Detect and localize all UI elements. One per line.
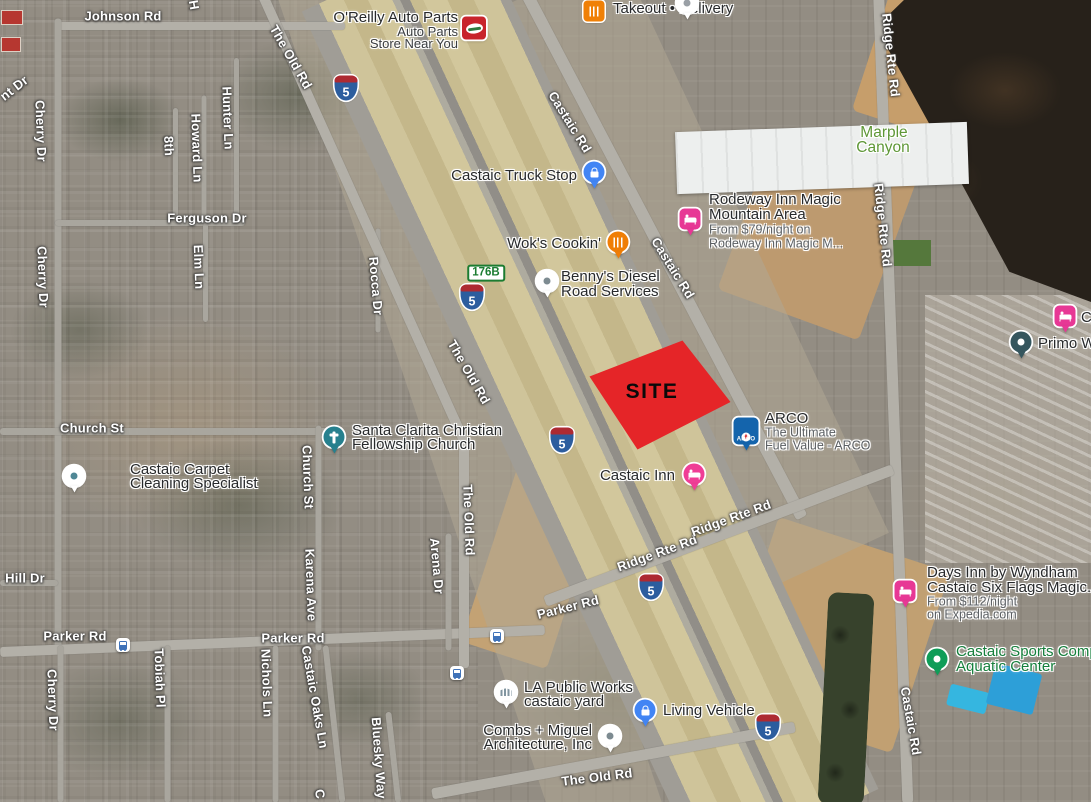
- road-label-nichols-ln: Nichols Ln: [258, 649, 275, 718]
- road: [173, 108, 178, 223]
- primo-icon[interactable]: [1011, 332, 1032, 353]
- warehouse-building: [675, 122, 969, 194]
- dining-icon: [590, 6, 599, 16]
- road-label-tobiah-pl: Tobiah Pl: [151, 648, 168, 708]
- arco-label[interactable]: Fuel Value - ARCO: [765, 439, 870, 452]
- road: [0, 428, 330, 435]
- exit-176b-sign: 176B: [467, 265, 505, 282]
- la-public-works-icon[interactable]: [496, 682, 517, 703]
- green-field: [893, 240, 931, 266]
- rodeway-inn-label[interactable]: Mountain Area: [709, 207, 806, 223]
- dot-icon: [683, 0, 691, 7]
- living-vehicle-icon[interactable]: [635, 700, 656, 721]
- woks-cookin-icon[interactable]: [608, 232, 629, 253]
- road-label-hunter-ln: Hunter Ln: [219, 86, 236, 150]
- dot-icon: [70, 472, 78, 480]
- castaic-carpet-cleaning-icon[interactable]: [64, 466, 85, 487]
- bus-icon: [119, 641, 127, 650]
- dot-icon: [1017, 338, 1025, 346]
- castaic-carpet-cleaning-label[interactable]: Cleaning Specialist: [130, 476, 258, 492]
- dot-icon: [933, 655, 941, 663]
- road-label-8th: 8th: [161, 136, 177, 157]
- castaic-inn-icon[interactable]: [684, 464, 705, 485]
- dot-icon: [543, 277, 551, 285]
- road-label-church-st-v: Church St: [299, 445, 316, 509]
- dot-icon: [606, 732, 614, 740]
- oreilly-auto-parts-icon[interactable]: [462, 17, 486, 40]
- takeout-delivery-label[interactable]: Takeout • Delivery: [613, 1, 733, 17]
- bennys-diesel-icon[interactable]: [537, 271, 558, 292]
- road-label-church-st-h: Church St: [60, 421, 124, 436]
- bed-icon: [688, 473, 700, 478]
- oreilly-logo-icon: [465, 22, 483, 34]
- takeout-delivery-icon[interactable]: [584, 1, 605, 22]
- hotel-top-right-icon[interactable]: [1055, 306, 1076, 327]
- days-inn-icon[interactable]: [895, 581, 916, 602]
- arco-icon[interactable]: ARCO: [734, 418, 759, 445]
- road-label-parker-rd-2: Parker Rd: [261, 631, 324, 646]
- bed-icon: [1059, 315, 1071, 320]
- santa-clarita-christian-church-icon[interactable]: [324, 427, 345, 448]
- castaic-inn-label[interactable]: Castaic Inn: [600, 468, 675, 484]
- rodeway-inn-icon[interactable]: [680, 209, 701, 230]
- satellite-map[interactable]: SITE Johnson Rdnt DrCherry Dr8thHoward L…: [0, 0, 1091, 802]
- castaic-sports-complex-icon[interactable]: [927, 649, 948, 670]
- combs-miguel-label[interactable]: Architecture, Inc: [484, 737, 592, 753]
- primo-label[interactable]: Primo W: [1038, 336, 1091, 352]
- road-label-johnson-rd: Johnson Rd: [84, 9, 161, 24]
- days-inn-label[interactable]: on Expedia.com: [927, 608, 1017, 621]
- la-public-works-label[interactable]: castaic yard: [524, 694, 604, 710]
- castaic-truck-stop-icon[interactable]: [584, 162, 605, 183]
- road-label-hill-dr: Hill Dr: [5, 571, 45, 586]
- road-label-parker-rd-1: Parker Rd: [43, 629, 106, 644]
- road-label-howard-ln: Howard Ln: [188, 113, 205, 182]
- road-label-cherry-dr-1: Cherry Dr: [32, 100, 49, 162]
- santa-clarita-christian-church-label[interactable]: Fellowship Church: [352, 437, 475, 453]
- rodeway-inn-label[interactable]: Rodeway Inn Magic M...: [709, 237, 843, 250]
- lock-icon: [641, 709, 649, 715]
- bus-stop-icon[interactable]: [116, 638, 130, 652]
- woks-cookin-label[interactable]: Wok's Cookin': [507, 236, 601, 252]
- hotel-top-right-label[interactable]: C: [1081, 310, 1091, 326]
- road-label-the-old-rd-v: The Old Rd: [460, 484, 477, 556]
- road-label-elm-ln: Elm Ln: [191, 244, 208, 289]
- lock-icon: [590, 171, 598, 177]
- bed-icon: [684, 218, 696, 223]
- bennys-diesel-label[interactable]: Road Services: [561, 284, 659, 300]
- site-label: SITE: [626, 380, 679, 404]
- road-label-karena-ave: Karena Ave: [302, 548, 320, 621]
- arco-logo-text: ARCO: [737, 437, 755, 443]
- bus-icon: [453, 669, 461, 678]
- road: [55, 18, 62, 648]
- building-icon: [500, 688, 512, 696]
- combs-miguel-icon[interactable]: [600, 726, 621, 747]
- road-label-partial-c: C: [312, 788, 328, 800]
- road-label-ferguson-dr: Ferguson Dr: [167, 211, 246, 226]
- red-roof-building: [1, 37, 21, 52]
- road-label-cherry-dr-3: Cherry Dr: [44, 669, 61, 731]
- cross-icon: [332, 431, 335, 443]
- bus-icon: [493, 632, 501, 641]
- bed-icon: [899, 590, 911, 595]
- living-vehicle-label[interactable]: Living Vehicle: [663, 703, 755, 719]
- bus-stop-icon[interactable]: [450, 666, 464, 680]
- red-roof-building: [1, 10, 23, 25]
- bus-stop-icon[interactable]: [490, 629, 504, 643]
- castaic-sports-complex-label[interactable]: Aquatic Center: [956, 659, 1055, 675]
- marple-canyon-label[interactable]: Canyon: [856, 140, 909, 156]
- rodeway-inn-label[interactable]: From $79/night on: [709, 223, 810, 236]
- castaic-truck-stop-label[interactable]: Castaic Truck Stop: [451, 168, 577, 184]
- dining-icon: [614, 237, 623, 247]
- oreilly-auto-parts-label[interactable]: Store Near You: [370, 37, 458, 51]
- road-label-cherry-dr-2: Cherry Dr: [34, 246, 51, 308]
